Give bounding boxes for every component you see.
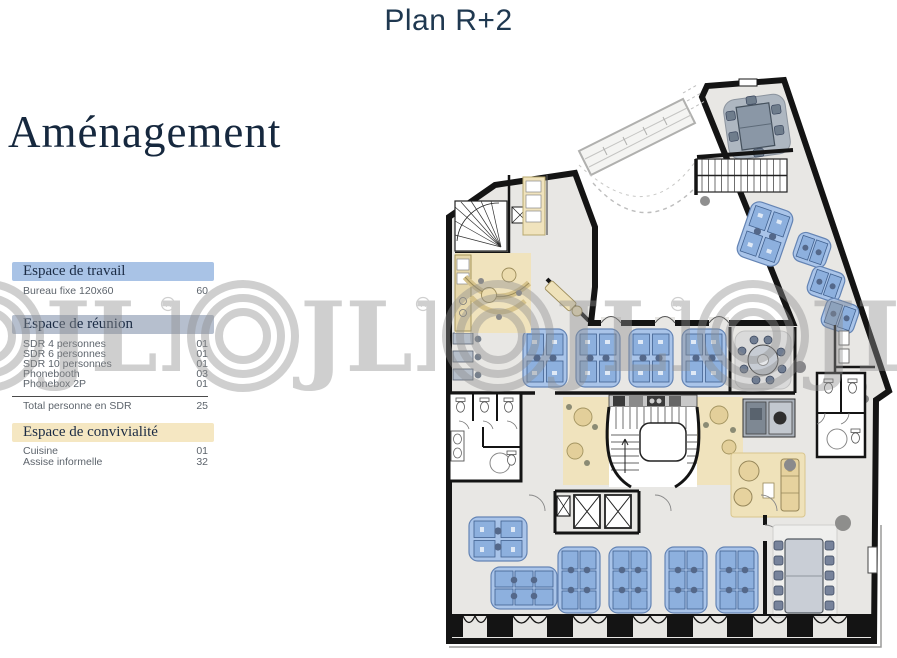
legend-total-value: 25 [196, 401, 208, 412]
stairs-central [607, 407, 699, 487]
floor-plan [443, 55, 893, 655]
legend-header-label: Espace de travail [23, 263, 125, 280]
legend-row: Assise informelle 32 [12, 457, 214, 468]
wc-right [817, 373, 865, 457]
legend-row-value: 01 [196, 379, 208, 390]
core-coffee-counter [609, 395, 697, 407]
legend-header-label: Espace de convivialité [23, 424, 158, 441]
legend-total-row: Total personne en SDR 25 [12, 401, 214, 412]
legend-row: Phonebox 2P 01 [12, 379, 214, 390]
legend-header-label: Espace de réunion [23, 316, 133, 333]
legend-row-label: Phonebox 2P [23, 379, 86, 390]
core-phonebooth-left [563, 397, 609, 485]
jll-registered-mark: R [420, 300, 426, 310]
legend-header-reunion: Espace de réunion [12, 315, 214, 334]
courtyard-terrace [579, 85, 705, 213]
legend-row-label: Assise informelle [23, 457, 102, 468]
jll-logo: JLL R [180, 268, 435, 406]
courtyard-windows [601, 317, 729, 329]
plant [784, 459, 796, 471]
legend-row: Bureau fixe 120x60 60 [12, 286, 214, 297]
kitchenette [743, 399, 795, 437]
legend-total-label: Total personne en SDR [23, 401, 132, 412]
kitchen-conviviality [455, 253, 531, 333]
jll-registered-mark: R [165, 300, 171, 310]
legend-row-value: 60 [196, 286, 208, 297]
page-title: Plan R+2 [0, 4, 897, 38]
legend-row-value: 32 [196, 457, 208, 468]
legend-row-label: Bureau fixe 120x60 [23, 286, 113, 297]
wc-left [449, 393, 521, 481]
legend-header-travail: Espace de travail [12, 262, 214, 281]
pantry [523, 175, 547, 235]
stairs-right-wing [696, 159, 787, 195]
page: { "page": { "title": "Plan R+2", "headin… [0, 0, 897, 658]
meeting-room-round [730, 327, 795, 393]
legend-header-convivialite: Espace de convivialité [12, 423, 214, 442]
section-heading: Aménagement [8, 106, 281, 158]
legend-separator [12, 396, 208, 397]
jll-watermark-text: JLL [292, 281, 435, 394]
